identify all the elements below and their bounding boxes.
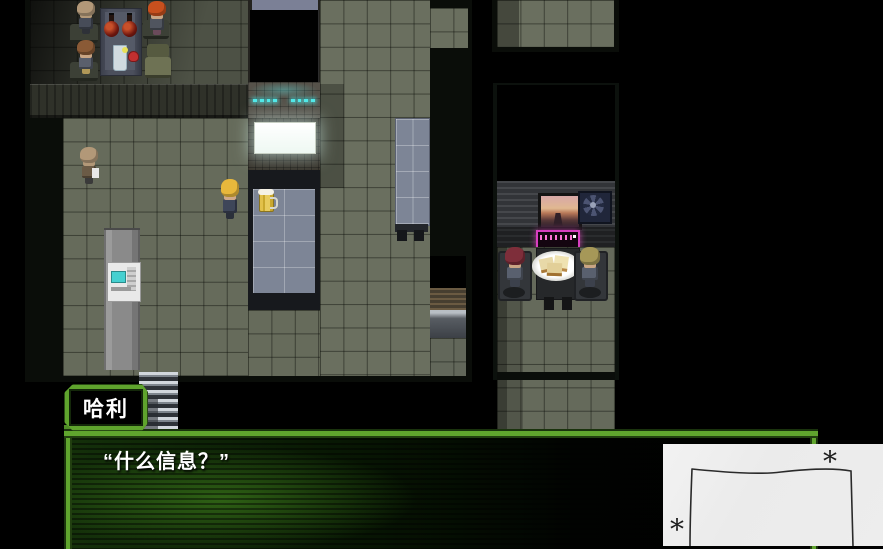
floor-top-right-patch — [430, 8, 468, 48]
empty-green-chair — [145, 44, 171, 78]
wall-blue-panel — [395, 118, 430, 226]
chair-seat — [145, 57, 171, 78]
picture-mountain — [550, 213, 566, 227]
bottle-body — [122, 21, 137, 37]
table-leg — [544, 297, 554, 310]
chair-base — [579, 287, 601, 298]
led-light — [267, 99, 271, 102]
glowing-sign — [254, 122, 316, 154]
whiskey-bottle — [121, 13, 138, 39]
sketch-overlay: * * — [663, 444, 883, 546]
diner-room — [493, 83, 619, 380]
wall-shelf-structure — [430, 256, 466, 338]
lemon-slice — [122, 47, 128, 53]
chair — [70, 62, 98, 81]
machine-screen — [111, 271, 126, 283]
shelf-panel — [430, 310, 466, 338]
wine-glass — [128, 51, 139, 62]
speaker-name: 哈利 — [64, 384, 148, 431]
led-light — [253, 99, 257, 102]
chair-back — [147, 44, 169, 58]
dialog-left-border — [64, 438, 72, 549]
ticket-machine[interactable] — [107, 262, 141, 302]
hand-drawn-rectangle — [663, 444, 883, 546]
shelf-slats — [430, 288, 466, 310]
asterisk-bottom-left: * — [670, 516, 684, 544]
chair — [70, 24, 98, 43]
machine-slot — [111, 287, 131, 291]
bar-table — [100, 8, 142, 76]
dialog-text: “什么信息？” — [103, 445, 230, 474]
picture-frame — [538, 193, 582, 230]
led-light — [260, 99, 264, 102]
beer-handle — [270, 197, 278, 209]
bottle-body — [104, 21, 119, 37]
diner-dark-top — [497, 85, 615, 181]
tall-glass — [113, 45, 127, 71]
table-leg — [562, 297, 572, 310]
floor-left — [63, 118, 248, 376]
ventilation-fan — [578, 191, 612, 224]
counter-side-shadow — [320, 84, 344, 188]
void-black-box — [250, 10, 319, 82]
fan-hub — [590, 202, 596, 208]
led-light — [311, 99, 315, 102]
dialog-top-border — [64, 429, 818, 438]
beer-foam — [258, 189, 274, 195]
name-box: 哈利 — [64, 384, 148, 431]
led-glow — [250, 82, 318, 98]
diner-bottom-edge — [497, 372, 615, 380]
floor-below-counter — [248, 310, 320, 376]
sandwich — [547, 263, 562, 277]
led-counter — [248, 82, 320, 118]
top-right-shade — [497, 0, 519, 47]
neon-glyphs — [540, 235, 572, 240]
game-viewport[interactable]: 哈利 “什么信息？” * * — [0, 0, 883, 549]
blue-panel-leg — [414, 230, 424, 241]
asterisk-top-right: * — [823, 448, 837, 476]
paper-in-hand — [92, 168, 99, 178]
neon-dot — [573, 235, 576, 238]
bar-nook-wall — [30, 84, 248, 118]
beer-mug — [258, 189, 276, 211]
led-strip — [253, 99, 315, 103]
ceiling-strip — [252, 0, 318, 10]
counter-column — [248, 0, 320, 376]
sandwich-plate — [532, 251, 580, 281]
led-light — [298, 99, 302, 102]
led-light — [273, 99, 277, 102]
whiskey-bottle — [103, 13, 120, 39]
floor-bottom-right-ext — [430, 338, 466, 376]
led-light — [291, 99, 295, 102]
led-gap — [280, 99, 288, 103]
chair-base — [503, 287, 525, 298]
chair — [143, 20, 169, 39]
blue-panel-leg — [397, 230, 407, 241]
led-light — [304, 99, 308, 102]
